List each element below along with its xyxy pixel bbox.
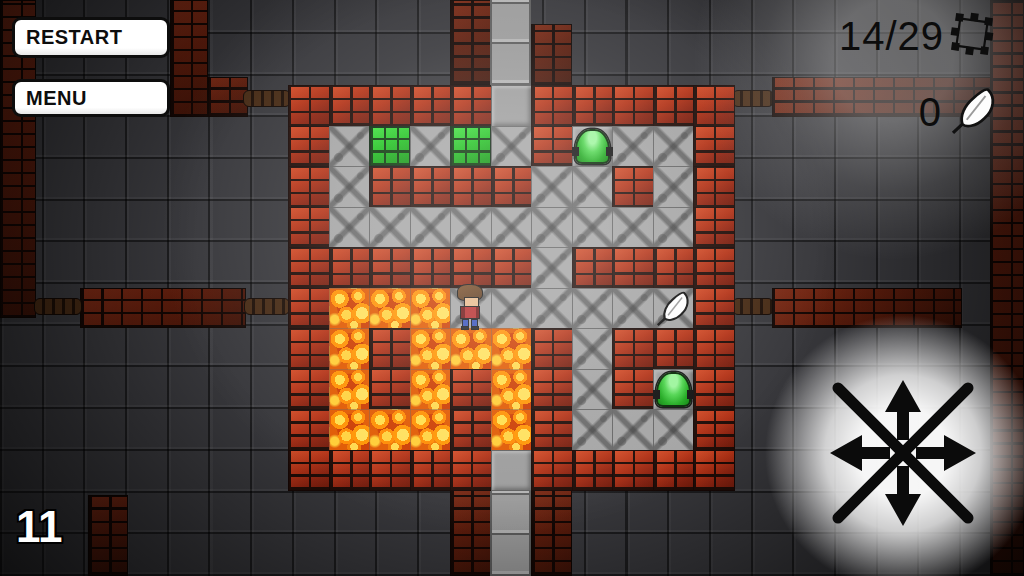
brick-wall-tile (369, 166, 411, 208)
restart-button[interactable]: RESTART (12, 17, 170, 58)
smooth-corridor (490, 490, 531, 576)
stone-floor-tile (491, 126, 533, 168)
brick-wall-tile (288, 85, 330, 127)
jelly-ear (572, 147, 579, 156)
stone-floor-tile (329, 166, 371, 208)
brick-wall-tile (531, 409, 573, 451)
stone-floor-tile (572, 288, 614, 330)
brick-wall-tile (693, 207, 735, 249)
brick-wall-tile (612, 166, 654, 208)
feather-icon (948, 86, 998, 136)
dpad-icon (818, 368, 988, 538)
smooth-floor-tile (491, 450, 533, 492)
feather-counter: 0 (919, 90, 942, 135)
brick-wall-tile (329, 85, 371, 127)
stone-floor-tile (329, 207, 371, 249)
brick-wall-tile (450, 166, 492, 208)
stone-floor-tile (653, 409, 695, 451)
brick-wall-tile (288, 207, 330, 249)
brick-wall-tile (288, 450, 330, 492)
stone-floor-tile (410, 207, 452, 249)
brick-wall-tile (410, 247, 452, 289)
stone-floor-tile (653, 126, 695, 168)
brick-wall-tile (450, 247, 492, 289)
brick-column (170, 0, 208, 117)
brick-column (450, 490, 491, 576)
brick-wall (772, 288, 962, 328)
stone-floor-tile (572, 207, 614, 249)
lava-tile (410, 369, 452, 411)
brick-wall-tile (693, 126, 735, 168)
brick-wall-tile (491, 166, 533, 208)
brick-wall-tile (369, 369, 411, 411)
dpad-right-arrow[interactable] (916, 435, 976, 471)
brick-wall-tile (653, 85, 695, 127)
brick-wall-tile (410, 450, 452, 492)
brick-wall-tile (329, 450, 371, 492)
dpad-down-arrow[interactable] (885, 466, 921, 526)
level-indicator: 11 (16, 502, 63, 552)
brick-wall-tile (612, 450, 654, 492)
brick-wall-tile (288, 328, 330, 370)
jelly-ear (606, 147, 613, 156)
chain (243, 90, 291, 107)
stone-floor-tile (491, 207, 533, 249)
chain (732, 90, 774, 107)
lava-tile (491, 409, 533, 451)
brick-wall-tile (410, 85, 452, 127)
player-shoe-r (471, 326, 479, 330)
jelly-slime (656, 372, 691, 408)
chain (732, 298, 774, 315)
brick-wall-tile (450, 369, 492, 411)
game-screen: RESTART MENU 14/29 0 11 (0, 0, 1024, 576)
brick-wall-tile (612, 369, 654, 411)
lava-tile (450, 328, 492, 370)
lava-tile (491, 369, 533, 411)
lava-tile (329, 409, 371, 451)
plant-tile (369, 126, 411, 168)
brick-wall-tile (410, 166, 452, 208)
brick-wall-tile (693, 166, 735, 208)
brick-wall-tile (329, 247, 371, 289)
brick-wall-tile (369, 328, 411, 370)
lava-tile (329, 288, 371, 330)
brick-wall-tile (531, 126, 573, 168)
feather-pickup (654, 290, 692, 328)
brick-wall-tile (572, 450, 614, 492)
jelly-ear (653, 390, 660, 399)
brick-wall-tile (693, 450, 735, 492)
brick-wall-tile (653, 328, 695, 370)
stone-floor-tile (572, 166, 614, 208)
jelly-ear (687, 390, 694, 399)
stone-floor-tile (612, 288, 654, 330)
brick-wall-tile (572, 247, 614, 289)
menu-button[interactable]: MENU (12, 79, 170, 117)
stone-floor-tile (653, 207, 695, 249)
stone-floor-tile (612, 207, 654, 249)
brick-wall-tile (491, 247, 533, 289)
brick-wall (80, 288, 246, 328)
brick-wall-tile (612, 328, 654, 370)
stone-floor-tile (653, 166, 695, 208)
brick-wall-tile (288, 166, 330, 208)
stone-floor-tile (531, 288, 573, 330)
brick-wall-tile (653, 450, 695, 492)
brick-wall-tile (288, 409, 330, 451)
brick-wall-tile (450, 450, 492, 492)
brick-wall-tile (653, 247, 695, 289)
brick-wall-tile (612, 85, 654, 127)
trap-icon (948, 10, 996, 58)
brick-wall-tile (369, 450, 411, 492)
brick-wall-tile (531, 450, 573, 492)
trap-counter: 14/29 (839, 14, 944, 59)
stone-floor-tile (369, 207, 411, 249)
brick-column (531, 24, 572, 85)
brick-wall-tile (693, 85, 735, 127)
smooth-floor-tile (491, 85, 533, 127)
lava-tile (369, 409, 411, 451)
player-character (456, 284, 484, 330)
brick-wall-tile (531, 85, 573, 127)
lava-tile (329, 328, 371, 370)
stone-floor-tile (572, 328, 614, 370)
lava-tile (491, 328, 533, 370)
stone-floor-tile (410, 126, 452, 168)
brick-wall-tile (612, 247, 654, 289)
brick-wall (208, 77, 248, 117)
brick-wall-tile (369, 247, 411, 289)
brick-wall-tile (572, 85, 614, 127)
brick-wall-tile (693, 288, 735, 330)
stone-floor-tile (612, 126, 654, 168)
brick-wall-tile (288, 288, 330, 330)
brick-wall-tile (288, 126, 330, 168)
stone-floor-tile (531, 166, 573, 208)
brick-wall-tile (693, 369, 735, 411)
lava-tile (410, 409, 452, 451)
dpad-up-arrow[interactable] (885, 380, 921, 440)
dpad-control[interactable] (818, 368, 988, 538)
stone-floor-tile (450, 207, 492, 249)
lava-tile (329, 369, 371, 411)
brick-wall-tile (450, 85, 492, 127)
brick-column (531, 490, 572, 576)
stone-floor-tile (572, 369, 614, 411)
chain (244, 298, 290, 315)
stone-floor-tile (612, 409, 654, 451)
lava-tile (369, 288, 411, 330)
smooth-corridor (490, 0, 531, 85)
lava-tile (410, 328, 452, 370)
brick-wall-tile (531, 369, 573, 411)
brick-wall-tile (288, 369, 330, 411)
lava-tile (410, 288, 452, 330)
stone-floor-tile (329, 126, 371, 168)
stone-floor-tile (531, 207, 573, 249)
player-shoe-l (461, 326, 469, 330)
brick-wall-tile (450, 409, 492, 451)
jelly-slime (575, 129, 610, 165)
brick-wall-tile (693, 409, 735, 451)
player-torso (460, 306, 480, 319)
chain (34, 298, 82, 315)
brick-wall-tile (531, 328, 573, 370)
brick-wall-tile (369, 85, 411, 127)
dpad-left-arrow[interactable] (830, 435, 890, 471)
brick-wall-tile (693, 328, 735, 370)
stone-floor-tile (572, 409, 614, 451)
stone-floor-tile (491, 288, 533, 330)
brick-wall-tile (693, 247, 735, 289)
brick-column (88, 495, 128, 576)
stone-floor-tile (531, 247, 573, 289)
brick-column (450, 0, 491, 85)
plant-tile (450, 126, 492, 168)
brick-wall-tile (288, 247, 330, 289)
